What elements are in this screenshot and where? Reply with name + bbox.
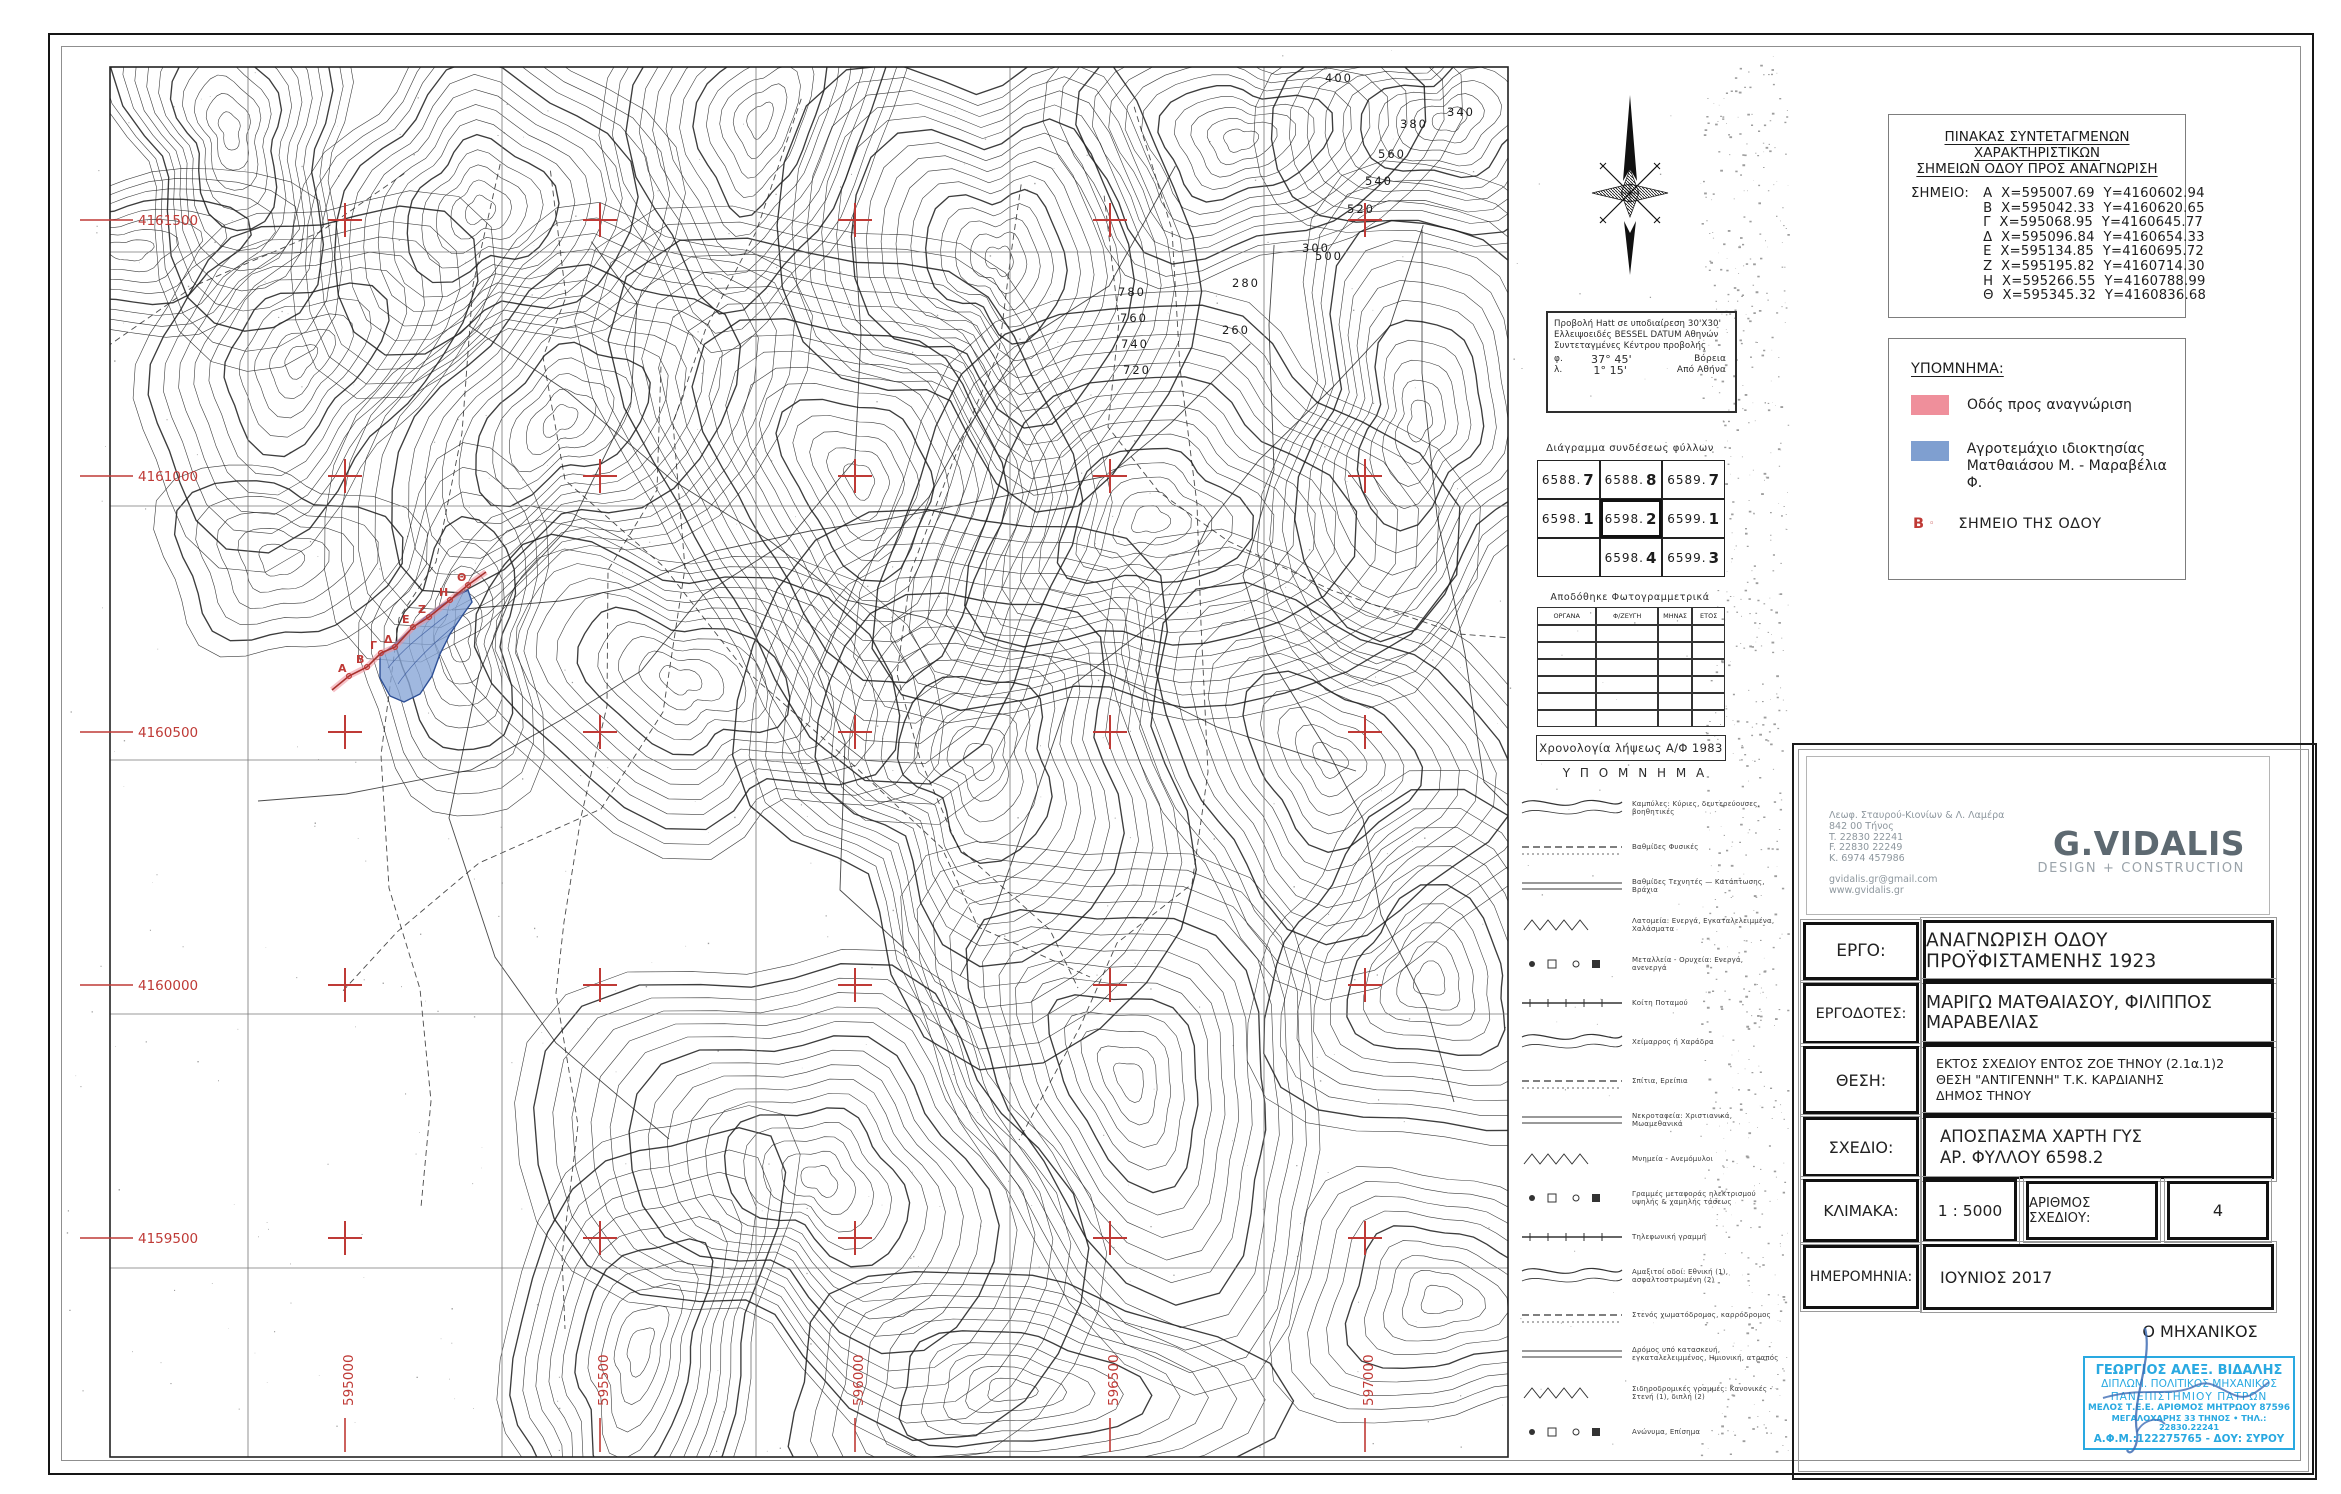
lambda-value: 1° 15' bbox=[1593, 365, 1627, 376]
easting-label: 596500 bbox=[1106, 1354, 1122, 1406]
photo-table-empty-cell bbox=[1692, 693, 1725, 710]
contour-label: 260 bbox=[1222, 323, 1250, 337]
contour-label: 520 bbox=[1347, 202, 1375, 216]
photo-table-header: ΜΗΝΑΣ bbox=[1658, 607, 1693, 625]
symbol-legend-row: Στενός χωματόδρομος, καρρόδρομος bbox=[1518, 1295, 1780, 1334]
easting-labels: 595000595500596000596500597000 bbox=[341, 1354, 1377, 1452]
contour-label: 300 bbox=[1302, 241, 1330, 255]
stamp-profession: ΔΙΠΛΩΜ. ΠΟΛΙΤΙΚΟΣ ΜΗΧΑΝΙΚΟΣ bbox=[2085, 1378, 2293, 1391]
symbol-legend-row: Γραμμές μεταφοράς ηλεκτρισμού υψηλής & χ… bbox=[1518, 1178, 1780, 1217]
sheet-connection-diagram: 6588.76588.86589.76598.16598.26599.16598… bbox=[1537, 460, 1725, 577]
map-symbol-caption: Στενός χωματόδρομος, καρρόδρομος bbox=[1632, 1311, 1780, 1319]
symbol-legend-row: Δρόμος υπό κατασκευή, εγκαταλελειμμένος,… bbox=[1518, 1334, 1780, 1373]
photo-table-empty-cell bbox=[1596, 625, 1657, 642]
coordinate-point-row: Θ X=595345.32 Y=4160836.68 bbox=[1983, 289, 2206, 304]
photo-table-empty-cell bbox=[1658, 659, 1693, 676]
engineer-title: Ο ΜΗΧΑΝΙΚΟΣ bbox=[2100, 1322, 2300, 1341]
sheet-number-cell: 6588.8 bbox=[1600, 460, 1663, 499]
photo-table-empty-cell bbox=[1692, 625, 1725, 642]
map-symbol-caption: Δρόμος υπό κατασκευή, εγκαταλελειμμένος,… bbox=[1632, 1346, 1780, 1362]
stamp-name: ΓΕΩΡΓΙΟΣ ΑΛΕΞ. ΒΙΔΑΛΗΣ bbox=[2085, 1363, 2293, 1378]
photogrammetric-table: ΟΡΓΑΝΑΦ/ΖΕΥΓΗΜΗΝΑΣΕΤΟΣ bbox=[1537, 607, 1725, 727]
map-symbol-caption: Λατομεία: Ενεργά, Εγκαταλελειμμένα, Χαλά… bbox=[1632, 917, 1780, 933]
photo-table-empty-cell bbox=[1596, 642, 1657, 659]
symbol-legend-row: Μνημεία - Ανεμόμυλοι bbox=[1518, 1139, 1780, 1178]
map-symbol-icon bbox=[1518, 1417, 1626, 1447]
contour-label: 560 bbox=[1378, 147, 1406, 161]
symbol-legend-row: Κοίτη Ποταμού bbox=[1518, 983, 1780, 1022]
parcel-legend-label-1: Αγροτεμάχιο ιδιοκτησίας bbox=[1967, 441, 2185, 458]
sheet-number-cell: 6588.7 bbox=[1537, 460, 1600, 499]
legend-box: ΥΠΟΜΝΗΜΑ: Οδός προς αναγνώριση Αγροτεμάχ… bbox=[1888, 338, 2186, 580]
map-symbol-caption: Κοίτη Ποταμού bbox=[1632, 999, 1780, 1007]
company-logo: G.VIDALIS bbox=[2038, 829, 2245, 859]
map-symbol-icon bbox=[1518, 1183, 1626, 1213]
contour-elevation-labels: 4003805605405205003403002802607807607407… bbox=[1118, 71, 1475, 377]
coordinate-point-row: Ζ X=595195.82 Y=4160714.30 bbox=[1983, 260, 2206, 275]
map-symbol-caption: Νεκροταφεία: Χριστιανικά, Μωαμεθανικά bbox=[1632, 1112, 1780, 1128]
photo-table-empty-cell bbox=[1537, 625, 1596, 642]
sheet-number-cell bbox=[1537, 538, 1600, 577]
map-symbol-icon bbox=[1518, 1378, 1626, 1408]
klimaka-label-cell: ΚΛΙΜΑΚΑ: bbox=[1803, 1179, 1919, 1242]
phi-label: φ. bbox=[1554, 354, 1563, 365]
arithmos-value-cell: 4 bbox=[2167, 1181, 2269, 1240]
road-point-letter: Ζ bbox=[418, 603, 426, 616]
northing-label: 4160500 bbox=[138, 725, 198, 741]
projection-line3: Συντεταγμένες Κέντρου προβολής bbox=[1554, 341, 1730, 352]
chronology-box: Χρονολογία λήψεως Α/Φ 1983 bbox=[1536, 735, 1726, 761]
road-legend-swatch bbox=[1911, 395, 1949, 415]
photo-table-header: Φ/ΖΕΥΓΗ bbox=[1596, 607, 1657, 625]
map-symbol-icon bbox=[1518, 1261, 1626, 1291]
road-point-letter: Β bbox=[356, 653, 364, 666]
photo-table-empty-cell bbox=[1692, 659, 1725, 676]
photo-table-title: Αποδόθηκε Φωτογραμμετρικά bbox=[1520, 592, 1740, 603]
road-point-legend-label: ΣΗΜΕΙΟ ΤΗΣ ΟΔΟΥ bbox=[1958, 516, 2101, 532]
projection-line2: Ελλειψοειδές BESSEL DATUM Αθηνών bbox=[1554, 330, 1730, 341]
photo-table-empty-cell bbox=[1537, 710, 1596, 727]
sheet-number-cell: 6598.2 bbox=[1600, 499, 1663, 538]
map-symbol-caption: Βαθμίδες Φυσικές bbox=[1632, 843, 1780, 851]
map-symbol-icon bbox=[1518, 871, 1626, 901]
photo-table-empty-cell bbox=[1537, 693, 1596, 710]
company-mobile: K. 6974 457986 bbox=[1829, 854, 2004, 865]
coordinate-point-row: Β X=595042.33 Y=4160620.65 bbox=[1983, 202, 2206, 217]
coordinate-point-row: Δ X=595096.84 Y=4160654.33 bbox=[1983, 231, 2206, 246]
ergodotes-label-cell: ΕΡΓΟΔΟΤΕΣ: bbox=[1803, 983, 1919, 1044]
map-symbols-legend: Καμπύλες: Κύριες, δευτερεύουσες, βοηθητι… bbox=[1518, 788, 1780, 1456]
imerominia-label-cell: ΗΜΕΡΟΜΗΝΙΑ: bbox=[1803, 1245, 1919, 1309]
photo-table-empty-cell bbox=[1692, 642, 1725, 659]
road-point-letter: Δ bbox=[384, 633, 393, 646]
photo-table-empty-cell bbox=[1692, 676, 1725, 693]
photo-table-empty-cell bbox=[1658, 625, 1693, 642]
road-point-circle-icon: ◦ bbox=[1929, 519, 1934, 529]
lambda-dir: Από Αθήνα bbox=[1677, 365, 1726, 376]
margin-legend-title: Υ Π Ο Μ Ν Η Μ Α bbox=[1520, 766, 1750, 780]
point-column-label: ΣΗΜΕΙΟ: bbox=[1911, 187, 1969, 304]
arithmos-label-cell: ΑΡΙΘΜΟΣ ΣΧΕΔΙΟΥ: bbox=[2026, 1181, 2158, 1240]
map-symbol-icon bbox=[1518, 1222, 1626, 1252]
map-symbol-icon bbox=[1518, 832, 1626, 862]
company-address-2: 842 00 Τήνος bbox=[1829, 822, 2004, 833]
map-symbol-icon bbox=[1518, 1339, 1626, 1369]
photo-table-empty-cell bbox=[1658, 642, 1693, 659]
symbol-legend-row: Λατομεία: Ενεργά, Εγκαταλελειμμένα, Χαλά… bbox=[1518, 905, 1780, 944]
projection-line1: Προβολή Hatt σε υποδιαίρεση 30'Χ30' bbox=[1554, 319, 1730, 330]
symbol-legend-row: Χείμαρρος ή Χαράδρα bbox=[1518, 1022, 1780, 1061]
map-symbol-caption: Ανώνυμα, Επίσημα bbox=[1632, 1428, 1780, 1436]
sheet-number-cell: 6598.4 bbox=[1600, 538, 1663, 577]
ergodotes-value-cell: ΜΑΡΙΓΩ ΜΑΤΘΑΙΑΣΟΥ, ΦΙΛΙΠΠΟΣ ΜΑΡΑΒΕΛΙΑΣ bbox=[1923, 981, 2274, 1045]
contour-lines bbox=[0, 0, 1645, 1494]
coordinate-point-row: Α X=595007.69 Y=4160602.94 bbox=[1983, 187, 2206, 202]
sxedio-line-2: ΑΡ. ΦΥΛΛΟΥ 6598.2 bbox=[1940, 1147, 2142, 1168]
contour-label: 780 bbox=[1118, 285, 1146, 299]
sheet-diagram-title: Διάγραμμα συνδέσεως φύλλων bbox=[1520, 443, 1740, 454]
sheet-number-cell: 6599.3 bbox=[1662, 538, 1725, 577]
photo-table-empty-cell bbox=[1596, 659, 1657, 676]
map-symbol-caption: Καμπύλες: Κύριες, δευτερεύουσες, βοηθητι… bbox=[1632, 800, 1780, 816]
photo-table-header: ΟΡΓΑΝΑ bbox=[1537, 607, 1596, 625]
symbol-legend-row: Καμπύλες: Κύριες, δευτερεύουσες, βοηθητι… bbox=[1518, 788, 1780, 827]
contour-label: 760 bbox=[1120, 311, 1148, 325]
sheet-number-cell: 6599.1 bbox=[1662, 499, 1725, 538]
northing-label: 4159500 bbox=[138, 1231, 198, 1247]
contour-label: 280 bbox=[1232, 276, 1260, 290]
compass-rose-icon bbox=[1592, 95, 1668, 275]
map-symbol-icon bbox=[1518, 988, 1626, 1018]
symbol-legend-row: Τηλεφωνική γραμμή bbox=[1518, 1217, 1780, 1256]
map-symbol-caption: Γραμμές μεταφοράς ηλεκτρισμού υψηλής & χ… bbox=[1632, 1190, 1780, 1206]
contour-label: 340 bbox=[1447, 105, 1475, 119]
road-point-letter: Ε bbox=[402, 613, 410, 626]
stamp-university: ΠΑΝΕΠΙΣΤΗΜΙΟΥ ΠΑΤΡΩΝ bbox=[2085, 1391, 2293, 1404]
road-legend-label: Οδός προς αναγνώριση bbox=[1967, 397, 2132, 413]
map-symbol-icon bbox=[1518, 1105, 1626, 1135]
coordinate-point-row: Η X=595266.55 Y=4160788.99 bbox=[1983, 275, 2206, 290]
photo-table-empty-cell bbox=[1596, 710, 1657, 727]
easting-label: 596000 bbox=[851, 1354, 867, 1406]
symbol-legend-row: Μεταλλεία - Ορυχεία: Ενεργά, ανενεργά bbox=[1518, 944, 1780, 983]
symbol-legend-row: Ανώνυμα, Επίσημα bbox=[1518, 1412, 1780, 1451]
map-symbol-caption: Τηλεφωνική γραμμή bbox=[1632, 1233, 1780, 1241]
thesi-line-3: ΔΗΜΟΣ ΤΗΝΟΥ bbox=[1936, 1088, 2224, 1104]
sxedio-label-cell: ΣΧΕΔΙΟ: bbox=[1803, 1117, 1919, 1177]
map-symbol-icon bbox=[1518, 1144, 1626, 1174]
sxedio-value-cell: ΑΠΟΣΠΑΣΜΑ ΧΑΡΤΗ ΓΥΣ ΑΡ. ΦΥΛΛΟΥ 6598.2 bbox=[1923, 1115, 2274, 1179]
northing-labels: 41615004161000416050041600004159500 bbox=[80, 213, 198, 1247]
northing-label: 4160000 bbox=[138, 978, 198, 994]
northing-label: 4161000 bbox=[138, 469, 198, 485]
contour-label: 740 bbox=[1121, 337, 1149, 351]
thesi-line-1: ΕΚΤΟΣ ΣΧΕΔΙΟΥ ΕΝΤΟΣ ΖΟΕ ΤΗΝΟΥ (2.1α.1)2 bbox=[1936, 1056, 2224, 1072]
phi-dir: Βόρεια bbox=[1694, 354, 1726, 365]
map-symbol-icon bbox=[1518, 910, 1626, 940]
photo-table-empty-cell bbox=[1537, 659, 1596, 676]
engineer-stamp: ΓΕΩΡΓΙΟΣ ΑΛΕΞ. ΒΙΔΑΛΗΣ ΔΙΠΛΩΜ. ΠΟΛΙΤΙΚΟΣ… bbox=[2083, 1356, 2295, 1450]
thesi-line-2: ΘΕΣΗ "ΑΝΤΙΓΕΝΝΗ" Τ.Κ. ΚΑΡΔΙΑΝΗΣ bbox=[1936, 1072, 2224, 1088]
map-symbol-caption: Μνημεία - Ανεμόμυλοι bbox=[1632, 1155, 1780, 1163]
photo-table-empty-cell bbox=[1658, 693, 1693, 710]
ergo-value-cell: ΑΝΑΓΝΩΡΙΣΗ ΟΔΟΥ ΠΡΟΫΦΙΣΤΑΜΕΝΗΣ 1923 bbox=[1923, 920, 2274, 981]
symbol-legend-row: Βαθμίδες Τεχνητές — Κατάπτωσης, Βράχια bbox=[1518, 866, 1780, 905]
symbol-legend-row: Βαθμίδες Φυσικές bbox=[1518, 827, 1780, 866]
map-symbol-caption: Χείμαρρος ή Χαράδρα bbox=[1632, 1038, 1780, 1046]
road-point-letter: Θ bbox=[457, 571, 466, 584]
map-symbol-icon bbox=[1518, 1300, 1626, 1330]
coordinate-point-row: Γ X=595068.95 Y=4160645.77 bbox=[1983, 216, 2206, 231]
map-symbol-icon bbox=[1518, 949, 1626, 979]
map-symbol-caption: Βαθμίδες Τεχνητές — Κατάπτωσης, Βράχια bbox=[1632, 878, 1780, 894]
sheet-number-cell: 6598.1 bbox=[1537, 499, 1600, 538]
coordinate-table-title-2: ΣΗΜΕΙΩΝ ΟΔΟΥ ΠΡΟΣ ΑΝΑΓΝΩΡΙΣΗ bbox=[1889, 161, 2185, 177]
symbol-legend-row: Αμαξιτοί οδοί: Εθνική (1), ασφαλτοστρωμέ… bbox=[1518, 1256, 1780, 1295]
road-point-symbol: Β bbox=[1913, 516, 1924, 532]
symbol-legend-row: Νεκροταφεία: Χριστιανικά, Μωαμεθανικά bbox=[1518, 1100, 1780, 1139]
thesi-value-cell: ΕΚΤΟΣ ΣΧΕΔΙΟΥ ΕΝΤΟΣ ΖΟΕ ΤΗΝΟΥ (2.1α.1)2 … bbox=[1923, 1044, 2274, 1116]
road-point-letter: Γ bbox=[370, 639, 377, 652]
contour-label: 380 bbox=[1400, 117, 1428, 131]
map-symbol-icon bbox=[1518, 1066, 1626, 1096]
contour-label: 400 bbox=[1325, 71, 1353, 85]
thesi-label-cell: ΘΕΣΗ: bbox=[1803, 1046, 1919, 1114]
easting-label: 595500 bbox=[596, 1354, 612, 1406]
coordinate-point-list: Α X=595007.69 Y=4160602.94Β X=595042.33 … bbox=[1983, 187, 2206, 304]
contour-label: 720 bbox=[1123, 363, 1151, 377]
road-point-letter: Α bbox=[338, 662, 347, 675]
ergo-label-cell: ΕΡΓΟ: bbox=[1803, 922, 1919, 980]
coordinate-table-title-1: ΠΙΝΑΚΑΣ ΣΥΝΤΕΤΑΓΜΕΝΩΝ ΧΑΡΑΚΤΗΡΙΣΤΙΚΩΝ bbox=[1889, 129, 2185, 161]
drawing-sheet: { "coord_table": { "title_line1": "ΠΙΝΑΚ… bbox=[0, 0, 2341, 1494]
klimaka-value-cell: 1 : 5000 bbox=[1923, 1179, 2017, 1242]
road-point-letter: Η bbox=[439, 586, 448, 599]
sxedio-line-1: ΑΠΟΣΠΑΣΜΑ ΧΑΡΤΗ ΓΥΣ bbox=[1940, 1126, 2142, 1147]
symbol-legend-row: Σπίτια, Ερείπια bbox=[1518, 1061, 1780, 1100]
photo-table-empty-cell bbox=[1658, 676, 1693, 693]
map-symbol-icon bbox=[1518, 793, 1626, 823]
map-symbol-caption: Σιδηροδρομικές γραμμές: Κανονικές - Στεν… bbox=[1632, 1385, 1780, 1401]
photo-table-empty-cell bbox=[1658, 710, 1693, 727]
coordinate-table: ΠΙΝΑΚΑΣ ΣΥΝΤΕΤΑΓΜΕΝΩΝ ΧΑΡΑΚΤΗΡΙΣΤΙΚΩΝ ΣΗ… bbox=[1888, 114, 2186, 318]
parcel-legend-label-2: Ματθαιάσου Μ. - Μαραβέλια Φ. bbox=[1967, 458, 2185, 492]
easting-label: 595000 bbox=[341, 1354, 357, 1406]
sheet-number-cell: 6589.7 bbox=[1662, 460, 1725, 499]
lambda-label: λ. bbox=[1554, 365, 1562, 376]
legend-title: ΥΠΟΜΝΗΜΑ: bbox=[1911, 361, 2185, 377]
stamp-address: ΜΕΓΑΛΟΧΑΡΗΣ 33 ΤΗΝΟΣ • ΤΗΛ.: 22830.22241 bbox=[2085, 1414, 2293, 1433]
map-symbol-caption: Σπίτια, Ερείπια bbox=[1632, 1077, 1780, 1085]
company-website: www.gvidalis.gr bbox=[1829, 886, 2004, 897]
stamp-afm: Α.Φ.Μ.:122275765 - ΔΟΥ: ΣΥΡΟΥ bbox=[2085, 1433, 2293, 1445]
map-symbol-caption: Μεταλλεία - Ορυχεία: Ενεργά, ανενεργά bbox=[1632, 956, 1780, 972]
coordinate-point-row: Ε X=595134.85 Y=4160695.72 bbox=[1983, 245, 2206, 260]
company-header-box: Λεωφ. Σταυρού-Κιονίων & Λ. Λαμέρα 842 00… bbox=[1806, 756, 2270, 915]
photo-table-empty-cell bbox=[1596, 693, 1657, 710]
symbol-legend-row: Σιδηροδρομικές γραμμές: Κανονικές - Στεν… bbox=[1518, 1373, 1780, 1412]
photo-table-empty-cell bbox=[1537, 642, 1596, 659]
contour-label: 540 bbox=[1365, 174, 1393, 188]
map-symbol-caption: Αμαξιτοί οδοί: Εθνική (1), ασφαλτοστρωμέ… bbox=[1632, 1268, 1780, 1284]
photo-table-header: ΕΤΟΣ bbox=[1692, 607, 1725, 625]
projection-info-box: Προβολή Hatt σε υποδιαίρεση 30'Χ30' Ελλε… bbox=[1546, 311, 1737, 413]
photo-table-empty-cell bbox=[1692, 710, 1725, 727]
photo-table-empty-cell bbox=[1596, 676, 1657, 693]
northing-label: 4161500 bbox=[138, 213, 198, 229]
company-logo-tagline: DESIGN + CONSTRUCTION bbox=[2038, 861, 2245, 876]
map-symbol-icon bbox=[1518, 1027, 1626, 1057]
imerominia-value-cell: ΙΟΥΝΙΟΣ 2017 bbox=[1923, 1244, 2274, 1310]
parcel-legend-swatch bbox=[1911, 441, 1949, 461]
photo-table-empty-cell bbox=[1537, 676, 1596, 693]
easting-label: 597000 bbox=[1361, 1354, 1377, 1406]
